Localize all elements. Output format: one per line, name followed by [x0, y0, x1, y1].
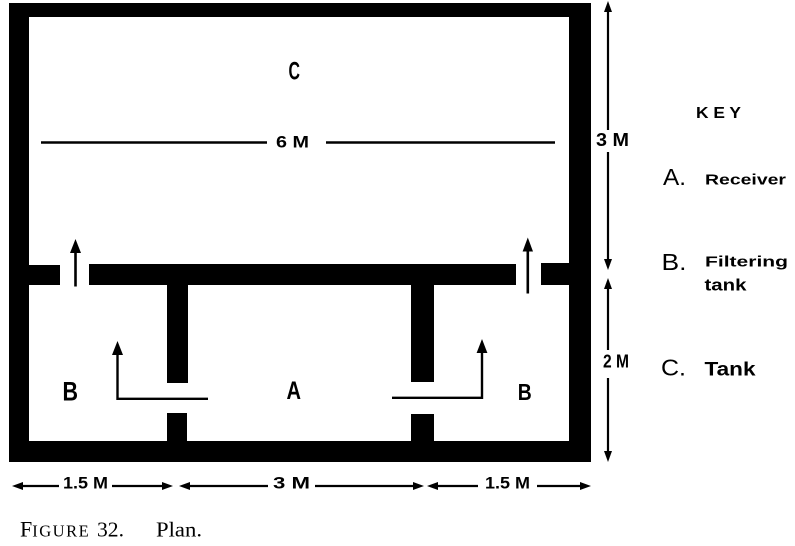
svg-text:B: B — [63, 377, 79, 407]
svg-text:K E Y: K E Y — [696, 105, 741, 122]
svg-text:Tank: Tank — [705, 360, 757, 381]
svg-text:1.5 M: 1.5 M — [485, 474, 530, 493]
svg-text:C: C — [289, 58, 301, 86]
svg-text:Filtering: Filtering — [705, 254, 788, 271]
svg-text:32.: 32. — [97, 518, 124, 542]
svg-text:Receiver: Receiver — [705, 172, 786, 189]
svg-text:2 M: 2 M — [603, 352, 629, 372]
svg-text:3 M: 3 M — [273, 474, 310, 493]
svg-text:A.: A. — [663, 164, 686, 190]
svg-text:1.5 M: 1.5 M — [63, 474, 108, 493]
svg-text:Plan.: Plan. — [156, 518, 202, 542]
svg-text:tank: tank — [705, 276, 748, 295]
svg-text:A: A — [287, 377, 302, 405]
svg-text:C.: C. — [661, 355, 686, 381]
svg-text:3 M: 3 M — [596, 130, 629, 150]
svg-text:B.: B. — [662, 249, 687, 275]
svg-text:B: B — [518, 379, 532, 405]
svg-text:6 M: 6 M — [276, 133, 309, 152]
